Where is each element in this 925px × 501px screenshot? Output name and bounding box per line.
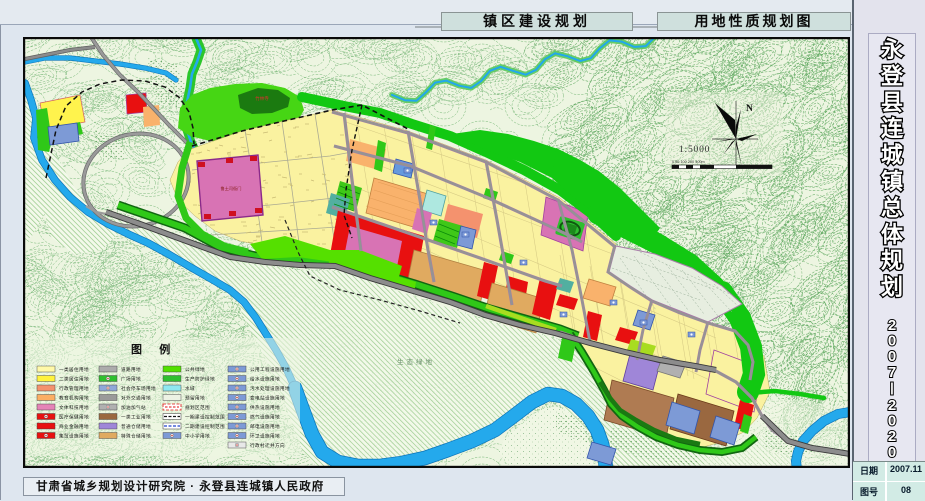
svg-text:一类工业用地: 一类工业用地 [121, 414, 151, 421]
svg-text:2: 2 [888, 428, 896, 445]
svg-text:鲁土司衙门: 鲁土司衙门 [221, 185, 242, 192]
svg-text:总: 总 [881, 195, 903, 220]
svg-text:1:5000: 1:5000 [679, 145, 710, 155]
svg-text:污水处理设施用地: 污水处理设施用地 [250, 385, 290, 392]
svg-text:邮电设施用地: 邮电设施用地 [250, 423, 280, 430]
svg-text:图 例: 图 例 [131, 342, 171, 356]
svg-text:2: 2 [888, 317, 896, 334]
svg-text:公用工程设施用地: 公用工程设施用地 [250, 366, 290, 373]
svg-text:给水设施用地: 给水设施用地 [250, 376, 280, 383]
svg-text:行政村迁并方向: 行政村迁并方向 [250, 442, 285, 449]
svg-text:0: 0 [888, 444, 896, 461]
svg-text:城: 城 [881, 143, 903, 168]
svg-text:7: 7 [888, 364, 896, 381]
svg-text:广场用地: 广场用地 [121, 376, 141, 383]
svg-text:|: | [890, 380, 894, 395]
svg-text:社会停车场用地: 社会停车场用地 [121, 385, 156, 392]
svg-text:道路用地: 道路用地 [121, 366, 141, 373]
svg-text:划: 划 [881, 275, 903, 300]
svg-text:预留用地: 预留用地 [185, 395, 205, 402]
svg-text:规划区范围: 规划区范围 [185, 404, 210, 411]
svg-text:0 50 100 200: 0 50 100 200 400m [672, 160, 705, 164]
svg-text:永: 永 [881, 37, 903, 62]
svg-text:一期建设控制范围: 一期建设控制范围 [185, 414, 225, 421]
svg-text:普通仓储用地: 普通仓储用地 [121, 423, 151, 430]
svg-text:特殊仓储用地: 特殊仓储用地 [121, 433, 151, 440]
svg-text:公共绿地: 公共绿地 [185, 366, 205, 373]
svg-text:镇: 镇 [881, 169, 903, 194]
svg-text:水域: 水域 [185, 385, 195, 391]
svg-text:连: 连 [881, 116, 904, 141]
svg-text:行政管理用地: 行政管理用地 [59, 385, 89, 392]
svg-text:N: N [746, 104, 753, 114]
svg-text:环卫设施用地: 环卫设施用地 [250, 433, 280, 440]
svg-text:0: 0 [888, 333, 896, 350]
svg-text:生产防护绿地: 生产防护绿地 [185, 376, 215, 383]
svg-text:县: 县 [881, 90, 903, 115]
svg-text:加油加气站: 加油加气站 [121, 404, 146, 411]
svg-text:医疗保健用地: 医疗保健用地 [59, 414, 89, 421]
svg-text:变电站设施用地: 变电站设施用地 [250, 395, 285, 402]
svg-text:登: 登 [880, 63, 904, 88]
svg-text:文体科技用地: 文体科技用地 [59, 404, 89, 411]
svg-text:教育机构用地: 教育机构用地 [59, 395, 89, 402]
svg-text:规: 规 [881, 248, 903, 273]
svg-text:2: 2 [888, 397, 896, 414]
svg-text:竹林寺: 竹林寺 [255, 95, 269, 102]
svg-text:商业金融用地: 商业金融用地 [59, 423, 89, 430]
svg-text:对外交通用地: 对外交通用地 [121, 395, 151, 402]
svg-text:一类居住用地: 一类居住用地 [59, 366, 89, 373]
svg-text:体: 体 [881, 222, 904, 247]
svg-text:集贸设施用地: 集贸设施用地 [59, 433, 89, 440]
svg-text:0: 0 [888, 413, 896, 430]
svg-text:燃气设施用地: 燃气设施用地 [250, 414, 280, 421]
svg-text:供热设施用地: 供热设施用地 [250, 404, 280, 411]
svg-text:0: 0 [888, 348, 896, 365]
svg-text:中小学用地: 中小学用地 [185, 433, 210, 440]
svg-text:二期建设控制范围: 二期建设控制范围 [185, 423, 225, 430]
svg-text:二类居住用地: 二类居住用地 [59, 376, 89, 383]
svg-text:生态绿地: 生态绿地 [397, 357, 435, 366]
